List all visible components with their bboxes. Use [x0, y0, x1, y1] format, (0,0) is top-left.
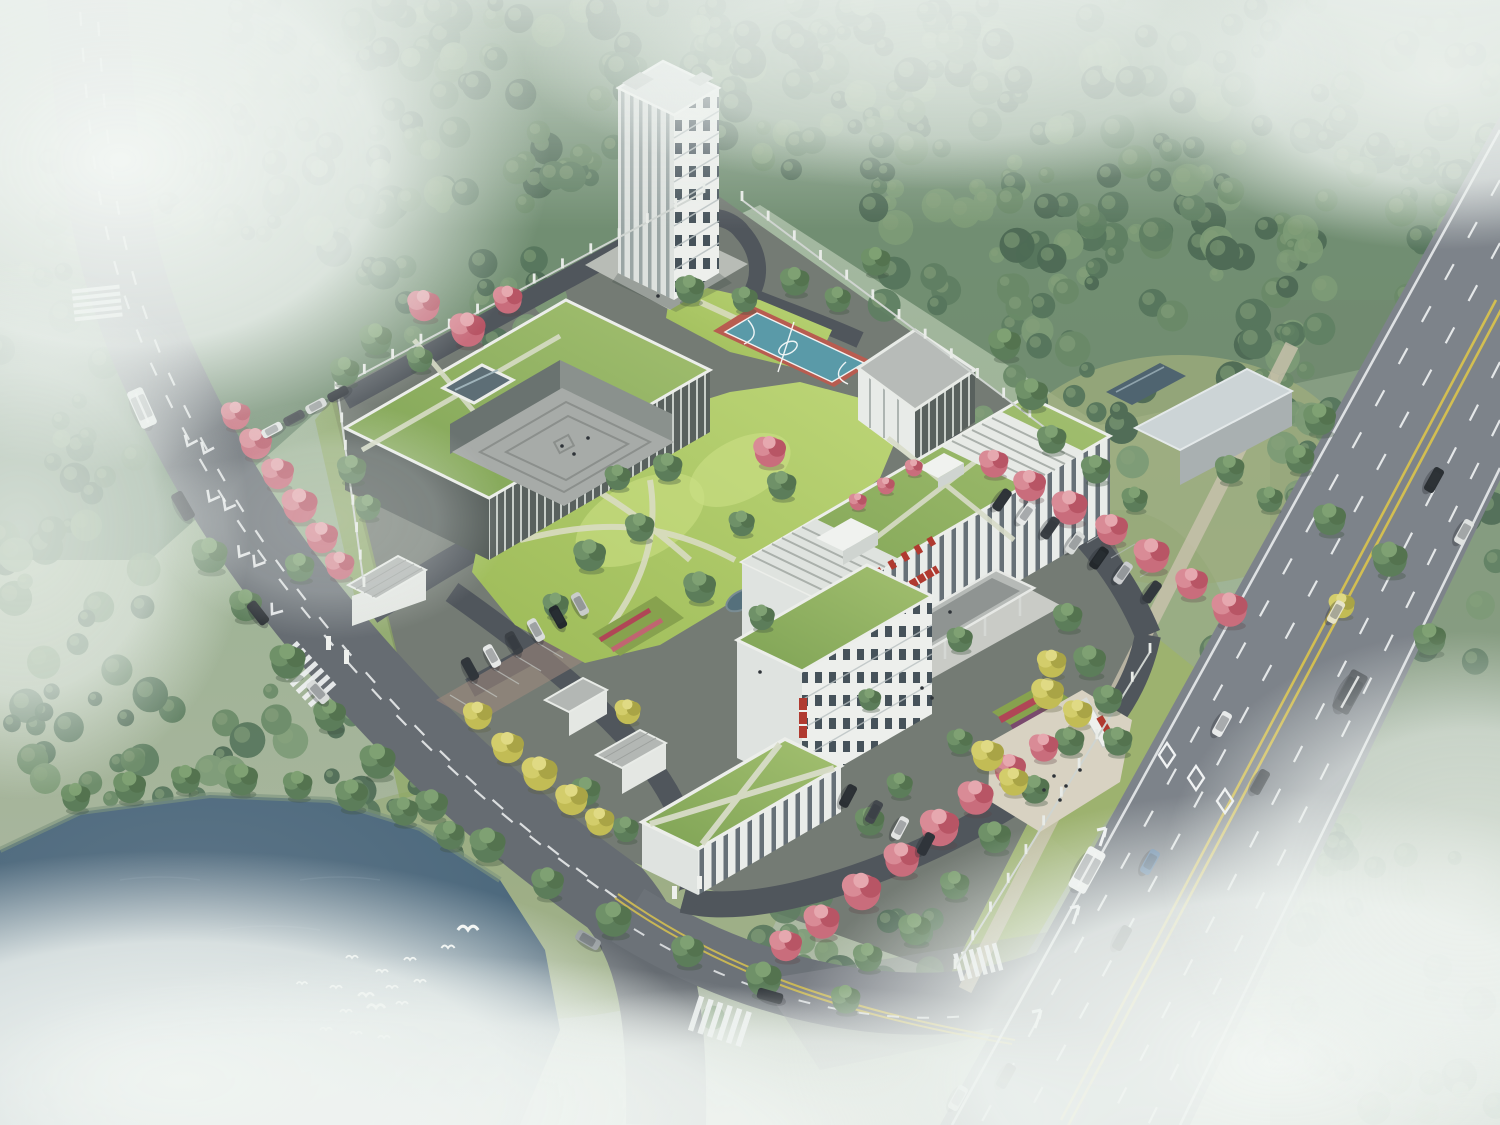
person — [1058, 798, 1062, 802]
haze-campus-west — [150, 400, 510, 640]
forest-tree-highlight — [1000, 276, 1010, 286]
forest-tree-highlight — [1041, 247, 1054, 260]
forest-tree-highlight — [1470, 594, 1483, 607]
fence-post — [561, 258, 564, 268]
south-gate-pier-1 — [672, 886, 677, 899]
forest-tree-highlight — [1079, 269, 1088, 278]
forest-tree-highlight — [924, 267, 936, 279]
fence-post — [1131, 672, 1134, 682]
fence-post — [793, 230, 796, 240]
forest-tree-highlight — [234, 727, 250, 743]
forest-tree-highlight — [1112, 404, 1120, 412]
forest-tree-highlight — [1059, 336, 1075, 352]
forest-tree-highlight — [1142, 292, 1155, 305]
forest-tree-highlight — [1009, 297, 1021, 309]
forest-tree-highlight — [1066, 388, 1076, 398]
forest-tree-highlight — [265, 685, 272, 692]
forest-tree-highlight — [1279, 278, 1289, 288]
person — [560, 444, 564, 448]
fence-post — [1002, 388, 1005, 398]
fence-post — [819, 250, 822, 260]
person — [948, 610, 952, 614]
forest-tree-highlight — [1081, 364, 1088, 371]
forest-tree-highlight — [1089, 405, 1098, 414]
aerial-rendering-canvas — [0, 0, 1500, 1125]
forest-tree-highlight — [975, 408, 985, 418]
south-gate-pier-2 — [697, 876, 702, 889]
forest-tree-highlight — [1030, 336, 1042, 348]
forest-tree-highlight — [1033, 296, 1044, 307]
person — [656, 294, 660, 298]
person — [586, 436, 590, 440]
forest-tree-highlight — [1006, 367, 1016, 377]
rendering-svg — [0, 0, 1500, 1125]
fence-post — [589, 243, 592, 253]
forest-tree-highlight — [1271, 436, 1285, 450]
person — [1078, 768, 1082, 772]
forest-tree-highlight — [1315, 279, 1327, 291]
fence-post — [1095, 729, 1098, 739]
fence-post — [976, 368, 979, 378]
forest-tree-highlight — [1004, 232, 1020, 248]
forest-tree-highlight — [215, 713, 227, 725]
fence-post — [533, 273, 536, 283]
fence-post — [1060, 787, 1063, 797]
fence-post — [871, 289, 874, 299]
west-gate-pier-2 — [344, 650, 349, 664]
forest-tree-highlight — [155, 789, 165, 799]
forest-tree-highlight — [1240, 303, 1256, 319]
forest-tree-highlight — [1299, 364, 1307, 372]
fence-post — [845, 270, 848, 280]
forest-tree-highlight — [1211, 269, 1217, 275]
forest-tree-highlight — [1298, 238, 1311, 251]
forest-tree-highlight — [1120, 450, 1135, 465]
forest-tree-highlight — [1487, 552, 1498, 563]
person — [1052, 774, 1056, 778]
person — [758, 670, 762, 674]
forest-tree-highlight — [1287, 241, 1294, 248]
forest-tree-highlight — [1088, 261, 1095, 268]
forest-tree-highlight — [1282, 327, 1291, 336]
forest-tree-highlight — [1086, 278, 1093, 285]
forest-tree-highlight — [1307, 317, 1322, 332]
forest-tree-highlight — [751, 929, 766, 944]
fence-post — [950, 348, 953, 358]
forest-tree-highlight — [1210, 240, 1226, 256]
person — [930, 696, 934, 700]
forest-tree-highlight — [1107, 247, 1115, 255]
fence-post — [1149, 643, 1152, 653]
fence-post — [1078, 758, 1081, 768]
forest-tree-highlight — [199, 759, 213, 773]
forest-tree-highlight — [930, 298, 939, 307]
forest-tree-highlight — [326, 770, 333, 777]
forest-tree-highlight — [1279, 252, 1290, 263]
person — [572, 452, 576, 456]
forest-tree-highlight — [1025, 319, 1040, 334]
person — [1064, 784, 1068, 788]
forest-tree-highlight — [991, 249, 998, 256]
fence-post — [924, 329, 927, 339]
vertical-corner-sign — [799, 698, 807, 738]
forest-tree-highlight — [1056, 282, 1068, 294]
person — [920, 686, 924, 690]
forest-tree-highlight — [105, 793, 112, 800]
forest-tree-highlight — [265, 708, 279, 722]
forest-tree-highlight — [1057, 233, 1071, 247]
forest-tree-highlight — [1243, 330, 1258, 345]
person — [1042, 788, 1046, 792]
fence-post — [898, 309, 901, 319]
forest-tree-highlight — [1161, 304, 1175, 318]
